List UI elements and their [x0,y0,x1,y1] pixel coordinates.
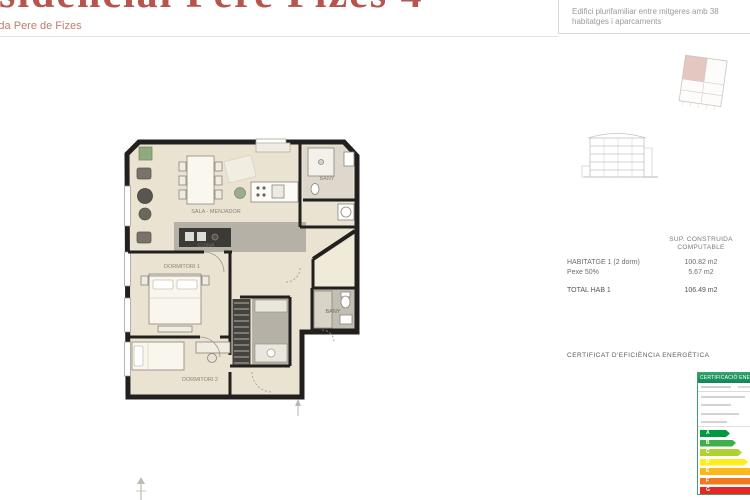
sink [344,152,354,166]
energy-bar-f: F [700,478,750,485]
surface-row-label: HABITATGE 1 (2 dorm) [567,259,640,266]
vanity-sink [267,349,275,357]
chair [208,354,217,363]
plant-icon [139,147,152,160]
page-subtitle: Avinguda Pere de Fizes [0,20,82,32]
surface-total-label: TOTAL HAB 1 [567,287,611,294]
room-label-kitchen: CUINA [197,243,214,249]
desk [196,342,230,353]
surface-row-label: Pexe 50% [567,269,599,276]
floor-plan: SALA - MENJADOR CUINA DORMITORI 1 DORMIT… [95,125,385,435]
nightstand [141,276,148,285]
energy-bar-b: B [700,440,736,447]
side-table [138,189,153,204]
toilet [311,184,319,195]
washer [338,204,354,220]
toilet-2 [341,296,350,308]
pillow [153,280,173,289]
north-arrow-icon [295,399,301,416]
surface-table-header-line2: COMPUTABLE [655,244,747,252]
energy-bar-a: A [700,430,730,437]
page-title: Residencial Pere Fizes 4 [0,0,424,15]
energy-label-title: CERTIFICACIÓ ENERGÈTICA [698,373,750,383]
energy-label: CERTIFICACIÓ ENERGÈTICA A B C D E F G [697,372,750,495]
nightstand-2 [202,276,209,285]
armchair-2 [137,232,151,243]
room-label-bedroom1: DORMITORI 1 [164,264,200,270]
pillow-2 [177,280,197,289]
energy-bar-c: C [700,449,742,456]
armchair [137,168,151,179]
building-description-line1: Edifici plurifamiliar entre mitgeres amb… [572,7,742,17]
highlighted-unit [682,55,707,82]
energy-bar-e: E [700,468,750,475]
surface-total-value: 106.49 m2 [655,287,747,294]
side-table-2 [139,208,151,220]
header-divider-right [558,33,750,34]
energy-label-form [698,392,750,427]
kitchen-cabinet [256,143,290,152]
surface-row-value: 5.67 m2 [655,269,747,276]
pillow-3 [134,346,143,366]
compass-icon [128,473,154,500]
energy-section-heading: CERTIFICAT D'EFICIÈNCIA ENERGÈTICA [567,352,709,359]
dining-table [187,156,214,204]
room-label-living: SALA - MENJADOR [191,209,241,215]
surface-table-header-line1: SUP. CONSTRUIDA [655,236,747,244]
energy-bar-d: D [700,459,748,466]
kitchen-sink [272,185,284,198]
room-label-bath1: BANY [320,176,335,182]
page: Residencial Pere Fizes 4 Avinguda Pere d… [0,0,750,500]
header-divider-vertical [558,0,559,33]
energy-scale: A B C D E F G [698,427,750,494]
plant-icon-2 [235,188,246,199]
bedroom1-furniture [141,274,209,332]
energy-label-subheader [698,383,750,392]
surface-table-header: SUP. CONSTRUIDA COMPUTABLE [655,236,747,252]
header-divider-left [0,36,558,37]
energy-bar-g: G [700,487,750,494]
key-plan-sketch [668,48,740,116]
building-description: Edifici plurifamiliar entre mitgeres amb… [572,7,742,27]
building-elevation-sketch [578,122,663,187]
sink-2 [340,315,352,324]
room-label-bath2: BANY [326,309,341,315]
shelving [255,300,287,312]
room-label-bedroom2: DORMITORI 2 [182,377,218,383]
bench [158,326,192,332]
building-description-line2: habitatges i aparcaments [572,17,742,27]
surface-row-value: 100.82 m2 [655,259,747,266]
